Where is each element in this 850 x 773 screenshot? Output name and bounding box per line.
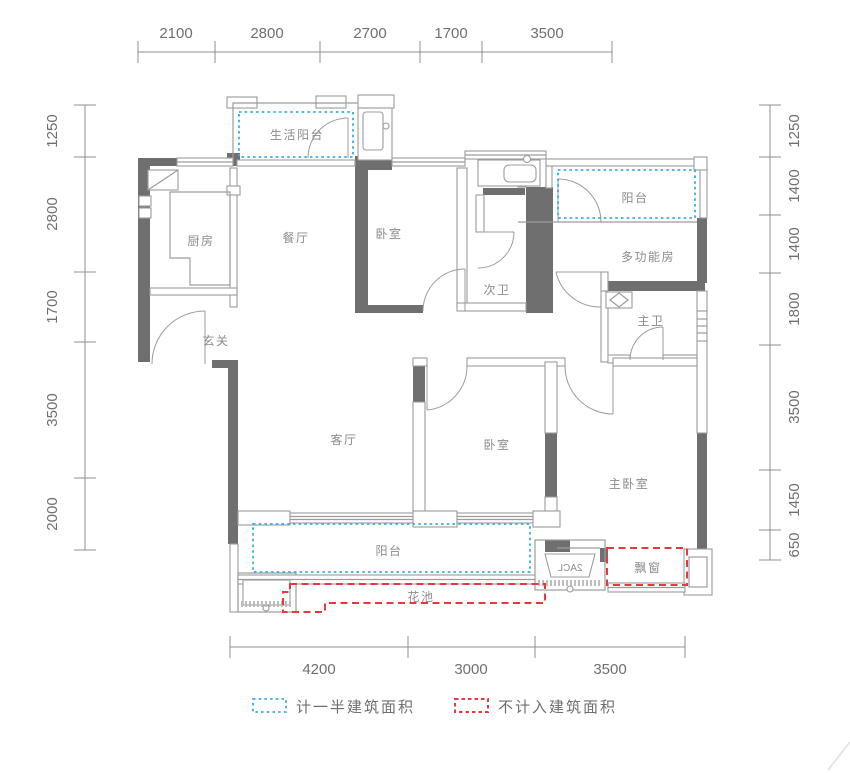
room-label-living: 客厅 — [330, 432, 357, 447]
dim-label: 2800 — [44, 197, 61, 230]
room-label-bedroom-bottom: 卧室 — [483, 437, 510, 452]
room-label-bath-master: 主卫 — [637, 314, 664, 328]
room-label-master-bedroom: 主卧室 — [609, 476, 650, 491]
room-label-balcony-bottom: 阳台 — [375, 543, 402, 558]
room-label-kitchen: 厨房 — [187, 233, 214, 248]
corner-mark — [828, 742, 850, 770]
legend: 计一半建筑面积 不计入建筑面积 — [253, 699, 617, 716]
legend-label-excluded-area: 不计入建筑面积 — [498, 699, 617, 716]
toilet-fixture — [504, 165, 536, 182]
dim-label: 1450 — [786, 483, 803, 516]
water-heater-fixture — [363, 112, 383, 150]
dim-label: 1800 — [786, 292, 803, 325]
legend-swatch-half-area — [253, 699, 286, 712]
dim-label: 1700 — [44, 290, 61, 323]
dim-label: 1250 — [786, 114, 803, 147]
room-labels: 生活阳台 厨房 餐厅 卧室 次卫 阳台 多功能房 主卫 玄关 客厅 卧室 主卧室… — [187, 127, 675, 604]
floor-plan-page: 2100 2800 2700 1700 3500 4200 3000 3500 … — [0, 0, 850, 773]
dim-label: 4200 — [302, 661, 335, 678]
room-label-entry: 玄关 — [202, 333, 229, 348]
room-label-dining: 餐厅 — [282, 230, 309, 245]
dim-label: 3500 — [786, 390, 803, 423]
mirrored-fixture-label: 2ACL — [557, 563, 582, 574]
room-label-bedroom-top: 卧室 — [375, 226, 402, 241]
dim-label: 3500 — [44, 393, 61, 426]
room-label-multi-function: 多功能房 — [621, 249, 675, 264]
legend-swatch-excluded-area — [455, 699, 488, 712]
room-label-bay-window: 飘窗 — [634, 561, 661, 575]
room-label-flower-bed: 花池 — [407, 589, 434, 604]
dim-label: 2100 — [159, 25, 192, 42]
dim-label: 3500 — [530, 25, 563, 42]
dim-label: 1250 — [44, 114, 61, 147]
dim-label: 3500 — [593, 661, 626, 678]
dim-label: 1400 — [786, 227, 803, 260]
legend-label-half-area: 计一半建筑面积 — [296, 699, 415, 716]
dim-label: 1400 — [786, 169, 803, 202]
dimension-chain-top: 2100 2800 2700 1700 3500 — [138, 25, 612, 63]
room-label-life-balcony: 生活阳台 — [270, 127, 324, 142]
dim-label: 3000 — [454, 661, 487, 678]
dim-label: 2700 — [353, 25, 386, 42]
room-label-bath-second: 次卫 — [483, 283, 510, 297]
room-label-balcony-top: 阳台 — [621, 190, 648, 205]
dim-label: 2800 — [250, 25, 283, 42]
dim-label: 650 — [786, 532, 803, 557]
dimension-chain-right: 1250 1400 1400 1800 3500 1450 650 — [759, 105, 803, 560]
floor-plan-drawing: 2100 2800 2700 1700 3500 4200 3000 3500 … — [0, 0, 850, 773]
dim-label: 2000 — [44, 497, 61, 530]
dimension-chain-left: 1250 2800 1700 3500 2000 — [44, 105, 96, 550]
dimension-chain-bottom: 4200 3000 3500 — [230, 636, 685, 678]
dim-label: 1700 — [434, 25, 467, 42]
